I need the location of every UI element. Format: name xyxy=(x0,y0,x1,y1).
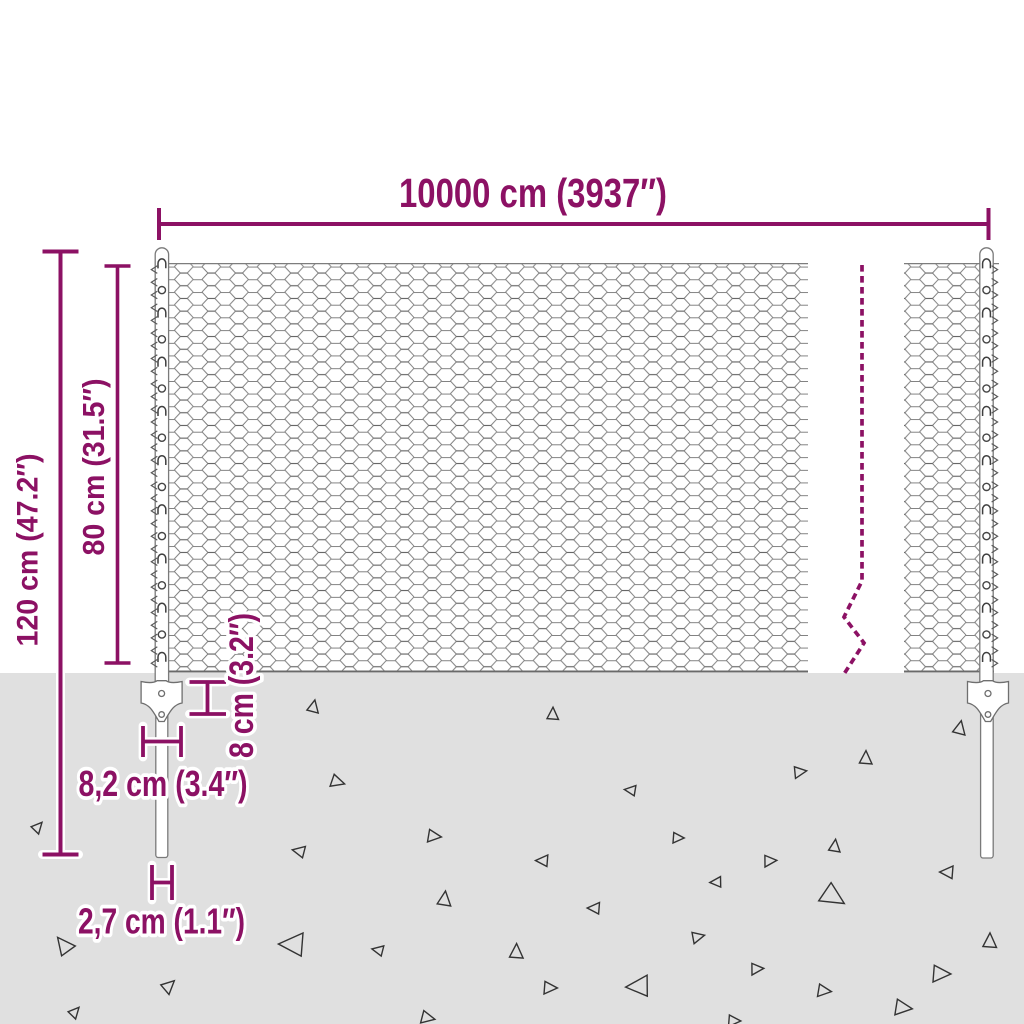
svg-text:8,2 cm (3.4″): 8,2 cm (3.4″) xyxy=(79,763,248,804)
svg-text:120 cm (47.2″): 120 cm (47.2″) xyxy=(12,454,45,647)
svg-text:80 cm (31.5″): 80 cm (31.5″) xyxy=(76,379,111,556)
svg-text:10000 cm (3937″): 10000 cm (3937″) xyxy=(399,170,667,216)
svg-text:2,7 cm (1.1″): 2,7 cm (1.1″) xyxy=(78,901,245,942)
svg-text:8 cm (3.2″): 8 cm (3.2″) xyxy=(223,613,261,758)
